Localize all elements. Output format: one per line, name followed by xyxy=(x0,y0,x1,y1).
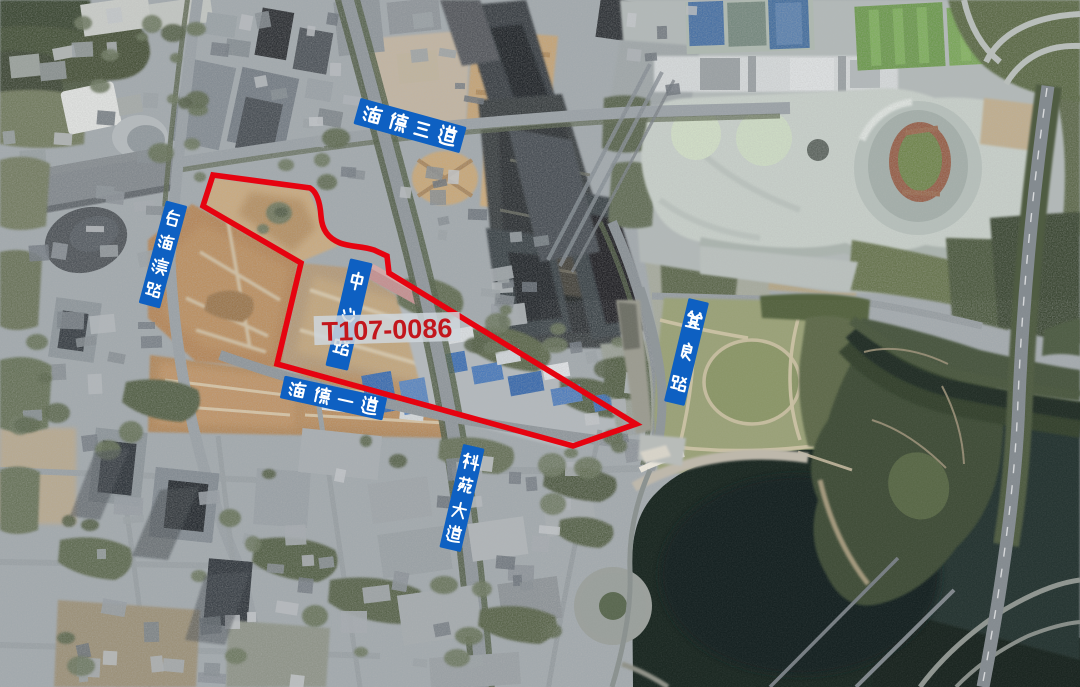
svg-text:T107-0086: T107-0086 xyxy=(321,313,452,347)
